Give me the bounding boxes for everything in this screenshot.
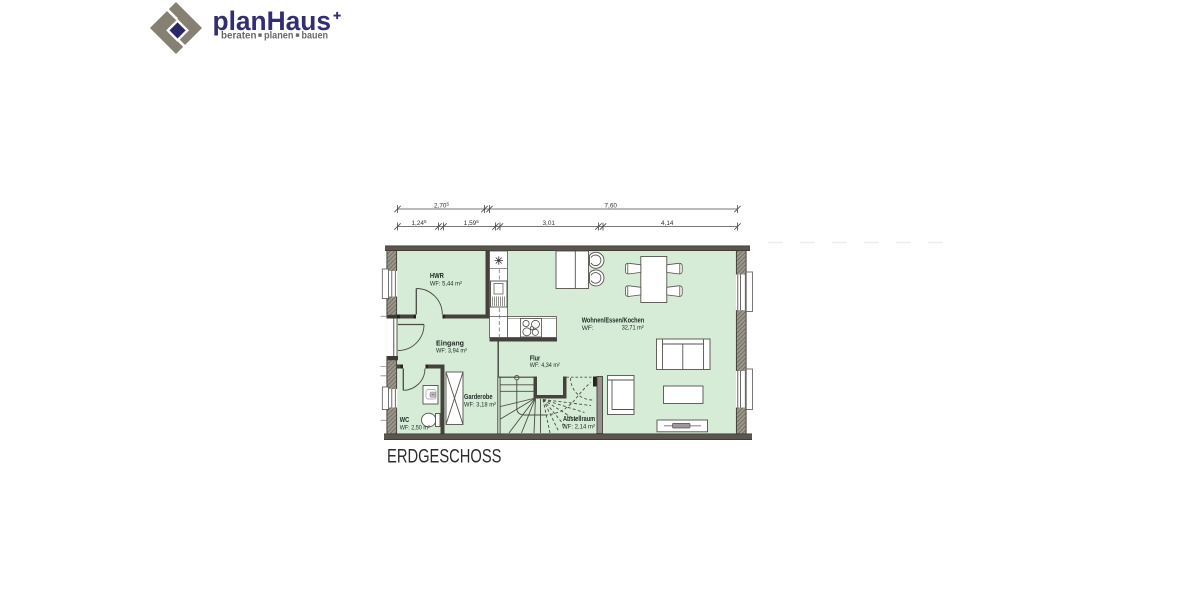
svg-text:ERDGESCHOSS: ERDGESCHOSS (387, 447, 502, 468)
svg-text:Flur: Flur (530, 353, 541, 362)
svg-text:7,60: 7,60 (605, 202, 618, 209)
svg-text:2,705: 2,705 (434, 202, 449, 210)
svg-text:4,14: 4,14 (661, 220, 674, 227)
svg-text:1,245: 1,245 (412, 219, 427, 227)
svg-text:WC: WC (400, 415, 410, 424)
svg-text:WF: 2,14 m²: WF: 2,14 m² (562, 424, 596, 431)
svg-text:Wohnen/Essen/Kochen: Wohnen/Essen/Kochen (582, 316, 645, 325)
svg-text:HWR: HWR (430, 271, 445, 280)
svg-text:Eingang: Eingang (436, 338, 464, 347)
svg-text:Abstellraum: Abstellraum (563, 414, 595, 423)
svg-text:WF: 3,94 m²: WF: 3,94 m² (436, 347, 468, 354)
svg-text:bauen: bauen (302, 31, 329, 42)
svg-text:3,01: 3,01 (543, 220, 556, 227)
svg-text:Garderobe: Garderobe (464, 392, 493, 401)
svg-text:planen: planen (264, 31, 294, 42)
svg-text:WF:: WF: (582, 325, 594, 332)
svg-text:32,71 m²: 32,71 m² (622, 324, 645, 331)
svg-text:1,595: 1,595 (464, 219, 479, 227)
svg-text:beraten: beraten (221, 31, 257, 42)
svg-text:WF: 5,44 m²: WF: 5,44 m² (430, 281, 463, 288)
svg-text:WF: 3,18 m²: WF: 3,18 m² (464, 401, 497, 408)
svg-text:WF: 4,34 m²: WF: 4,34 m² (530, 362, 561, 369)
svg-text:WF: 2,50 m²: WF: 2,50 m² (400, 424, 431, 431)
